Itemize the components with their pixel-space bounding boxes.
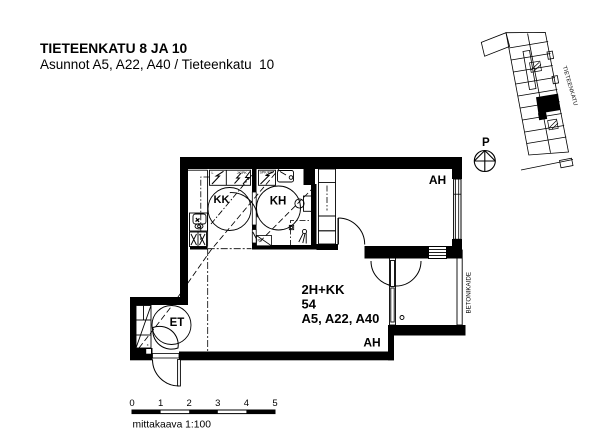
- svg-text:54: 54: [302, 297, 317, 312]
- svg-text:5: 5: [272, 398, 277, 409]
- svg-text:AH: AH: [363, 336, 380, 350]
- svg-text:AH: AH: [429, 173, 446, 187]
- svg-text:2H+KK: 2H+KK: [302, 282, 346, 297]
- svg-text:SPK/KK: SPK/KK: [260, 171, 274, 175]
- svg-text:4: 4: [244, 398, 249, 409]
- svg-text:JK/PK: JK/PK: [237, 171, 248, 175]
- svg-text:BETONIKAIDE: BETONIKAIDE: [466, 272, 473, 314]
- svg-text:ET: ET: [170, 317, 185, 329]
- svg-text:P: P: [482, 137, 490, 149]
- svg-text:KH: KH: [270, 196, 287, 208]
- svg-text:L: L: [212, 171, 214, 175]
- svg-text:x: x: [147, 343, 149, 347]
- svg-text:TIETEENKATU: TIETEENKATU: [561, 65, 578, 106]
- svg-text:1: 1: [158, 398, 163, 409]
- svg-text:A5, A22, A40: A5, A22, A40: [302, 311, 380, 326]
- svg-text:2: 2: [187, 398, 192, 409]
- svg-text:0: 0: [129, 398, 134, 409]
- svg-text:Asunnot A5, A22, A40 / Tieteen: Asunnot A5, A22, A40 / Tieteenkatu 10: [40, 57, 274, 72]
- svg-text:3: 3: [215, 398, 220, 409]
- svg-text:TIETEENKATU 8 JA 10: TIETEENKATU 8 JA 10: [40, 41, 188, 56]
- svg-text:mittakaava 1:100: mittakaava 1:100: [133, 420, 212, 431]
